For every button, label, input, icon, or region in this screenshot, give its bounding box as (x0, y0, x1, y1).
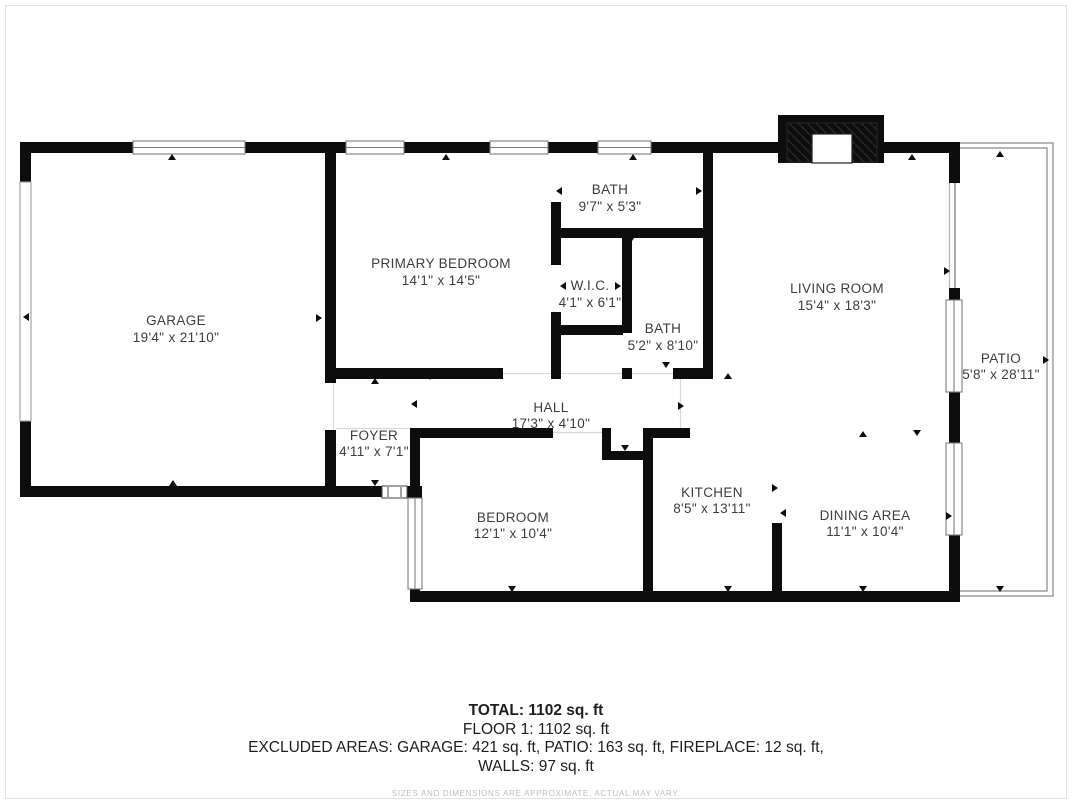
direction-marker (169, 480, 177, 486)
room-dims-bedroom: 12'1" x 10'4" (474, 526, 553, 541)
room-dims-dining-area: 11'1" x 10'4" (826, 524, 904, 539)
room-label-primary-bedroom: PRIMARY BEDROOM (371, 256, 511, 271)
room-dims-bath-hall: 5'2" x 8'10" (628, 338, 699, 353)
room-label-patio: PATIO (981, 351, 1021, 366)
room-label-wic: W.I.C. (571, 278, 610, 293)
room-label-dining-area: DINING AREA (820, 508, 911, 523)
direction-marker (772, 484, 778, 492)
total-area-text: TOTAL: 1102 sq. ft (0, 702, 1072, 721)
room-dims-bath-top: 9'7" x 5'3" (579, 199, 642, 214)
room-label-bedroom: BEDROOM (477, 510, 549, 525)
floorplan-drawing: GARAGE 19'4" x 21'10" PRIMARY BEDROOM 14… (0, 0, 1072, 690)
room-dims-patio: 5'8" x 28'11" (962, 367, 1040, 382)
direction-marker (629, 154, 637, 160)
garage-door-opening (20, 182, 31, 421)
room-boundary-lines (334, 374, 681, 433)
room-dims-wic: 4'1" x 6'1" (559, 295, 622, 310)
walls-area-text: WALLS: 97 sq. ft (0, 758, 1072, 777)
room-dims-kitchen: 8'5" x 13'11" (673, 501, 751, 516)
direction-marker (913, 430, 921, 436)
direction-marker (696, 187, 702, 195)
room-label-kitchen: KITCHEN (681, 485, 743, 500)
direction-marker (859, 431, 867, 437)
direction-marker (615, 282, 621, 290)
floor-area-text: FLOOR 1: 1102 sq. ft (0, 721, 1072, 740)
front-door (382, 486, 407, 498)
floorplan-page: GARAGE 19'4" x 21'10" PRIMARY BEDROOM 14… (0, 0, 1072, 804)
direction-marker (780, 509, 786, 517)
direction-marker (560, 282, 566, 290)
direction-marker (908, 154, 916, 160)
room-label-foyer: FOYER (350, 428, 398, 443)
room-label-bath-top: BATH (592, 182, 628, 197)
direction-marker (168, 154, 176, 160)
room-dims-garage: 19'4" x 21'10" (133, 330, 219, 345)
direction-marker (411, 400, 417, 408)
disclaimer-text: SIZES AND DIMENSIONS ARE APPROXIMATE, AC… (0, 785, 1072, 804)
direction-marker (662, 362, 670, 368)
direction-marker (556, 187, 562, 195)
room-dims-living-room: 15'4" x 18'3" (798, 298, 877, 313)
direction-marker (1043, 356, 1049, 364)
room-label-hall: HALL (533, 400, 568, 415)
excluded-areas-text: EXCLUDED AREAS: GARAGE: 421 sq. ft, PATI… (0, 739, 1072, 758)
area-summary: TOTAL: 1102 sq. ft FLOOR 1: 1102 sq. ft … (0, 702, 1072, 804)
room-dims-primary-bedroom: 14'1" x 14'5" (402, 273, 481, 288)
room-label-garage: GARAGE (146, 313, 206, 328)
room-label-bath-hall: BATH (645, 321, 681, 336)
direction-marker (996, 151, 1004, 157)
direction-marker (371, 480, 379, 486)
room-label-living-room: LIVING ROOM (790, 281, 884, 296)
direction-marker (442, 154, 450, 160)
room-dims-hall: 17'3" x 4'10" (512, 416, 591, 431)
room-dims-foyer: 4'11" x 7'1" (339, 444, 409, 459)
fireplace (778, 115, 884, 163)
direction-marker (316, 314, 322, 322)
direction-marker (724, 373, 732, 379)
direction-marker (621, 445, 629, 451)
